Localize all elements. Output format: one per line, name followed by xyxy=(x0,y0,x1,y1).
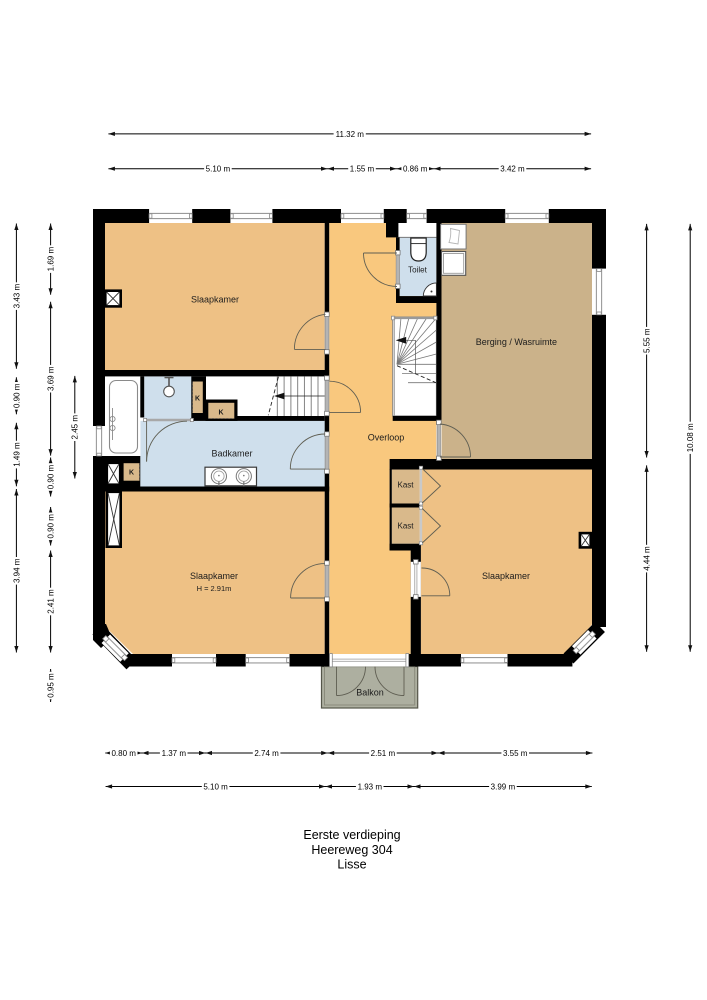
svg-text:Berging / Wasruimte: Berging / Wasruimte xyxy=(476,337,557,347)
svg-text:Heereweg 304: Heereweg 304 xyxy=(311,843,392,857)
svg-text:Lisse: Lisse xyxy=(337,858,366,872)
svg-text:Kast: Kast xyxy=(397,481,414,490)
svg-text:1.49 m: 1.49 m xyxy=(12,442,21,467)
svg-text:4.44 m: 4.44 m xyxy=(643,546,652,571)
svg-text:5.55 m: 5.55 m xyxy=(643,328,652,353)
svg-text:Slaapkamer: Slaapkamer xyxy=(482,571,530,581)
svg-text:3.42 m: 3.42 m xyxy=(500,165,525,174)
svg-text:3.94 m: 3.94 m xyxy=(12,558,21,583)
svg-text:K: K xyxy=(129,470,134,477)
svg-text:H = 2.91m: H = 2.91m xyxy=(197,584,232,593)
svg-text:1.93 m: 1.93 m xyxy=(358,782,383,791)
svg-text:1.55 m: 1.55 m xyxy=(350,165,375,174)
svg-text:3.69 m: 3.69 m xyxy=(46,366,55,391)
svg-text:3.55 m: 3.55 m xyxy=(503,749,528,758)
svg-text:0.90 m: 0.90 m xyxy=(46,464,55,489)
svg-text:Slaapkamer: Slaapkamer xyxy=(190,571,238,581)
svg-text:2.45 m: 2.45 m xyxy=(71,415,80,440)
svg-text:10.08 m: 10.08 m xyxy=(686,423,695,452)
svg-text:0.90 m: 0.90 m xyxy=(47,514,56,539)
svg-text:1.69 m: 1.69 m xyxy=(46,247,55,272)
svg-text:Eerste verdieping: Eerste verdieping xyxy=(303,828,400,842)
svg-text:1.37 m: 1.37 m xyxy=(162,749,187,758)
svg-text:2.74 m: 2.74 m xyxy=(254,749,279,758)
svg-text:2.41 m: 2.41 m xyxy=(47,589,56,614)
svg-text:K: K xyxy=(218,410,223,417)
svg-text:0.80 m: 0.80 m xyxy=(111,749,136,758)
svg-text:Toilet: Toilet xyxy=(408,266,427,275)
svg-text:Kast: Kast xyxy=(397,522,414,531)
svg-text:Overloop: Overloop xyxy=(368,433,405,443)
svg-text:Badkamer: Badkamer xyxy=(211,449,252,459)
svg-text:3.99 m: 3.99 m xyxy=(491,782,516,791)
svg-text:0.90 m: 0.90 m xyxy=(12,383,21,408)
svg-text:5.10 m: 5.10 m xyxy=(206,165,231,174)
svg-text:2.51 m: 2.51 m xyxy=(371,749,396,758)
svg-text:3.43 m: 3.43 m xyxy=(12,284,21,309)
svg-text:Slaapkamer: Slaapkamer xyxy=(191,295,239,305)
svg-text:0.86 m: 0.86 m xyxy=(403,165,428,174)
svg-text:Balkon: Balkon xyxy=(356,688,384,698)
svg-text:0.95 m: 0.95 m xyxy=(47,673,56,698)
svg-text:K: K xyxy=(195,396,200,403)
svg-text:11.32 m: 11.32 m xyxy=(336,130,365,139)
svg-text:5.10 m: 5.10 m xyxy=(203,782,228,791)
